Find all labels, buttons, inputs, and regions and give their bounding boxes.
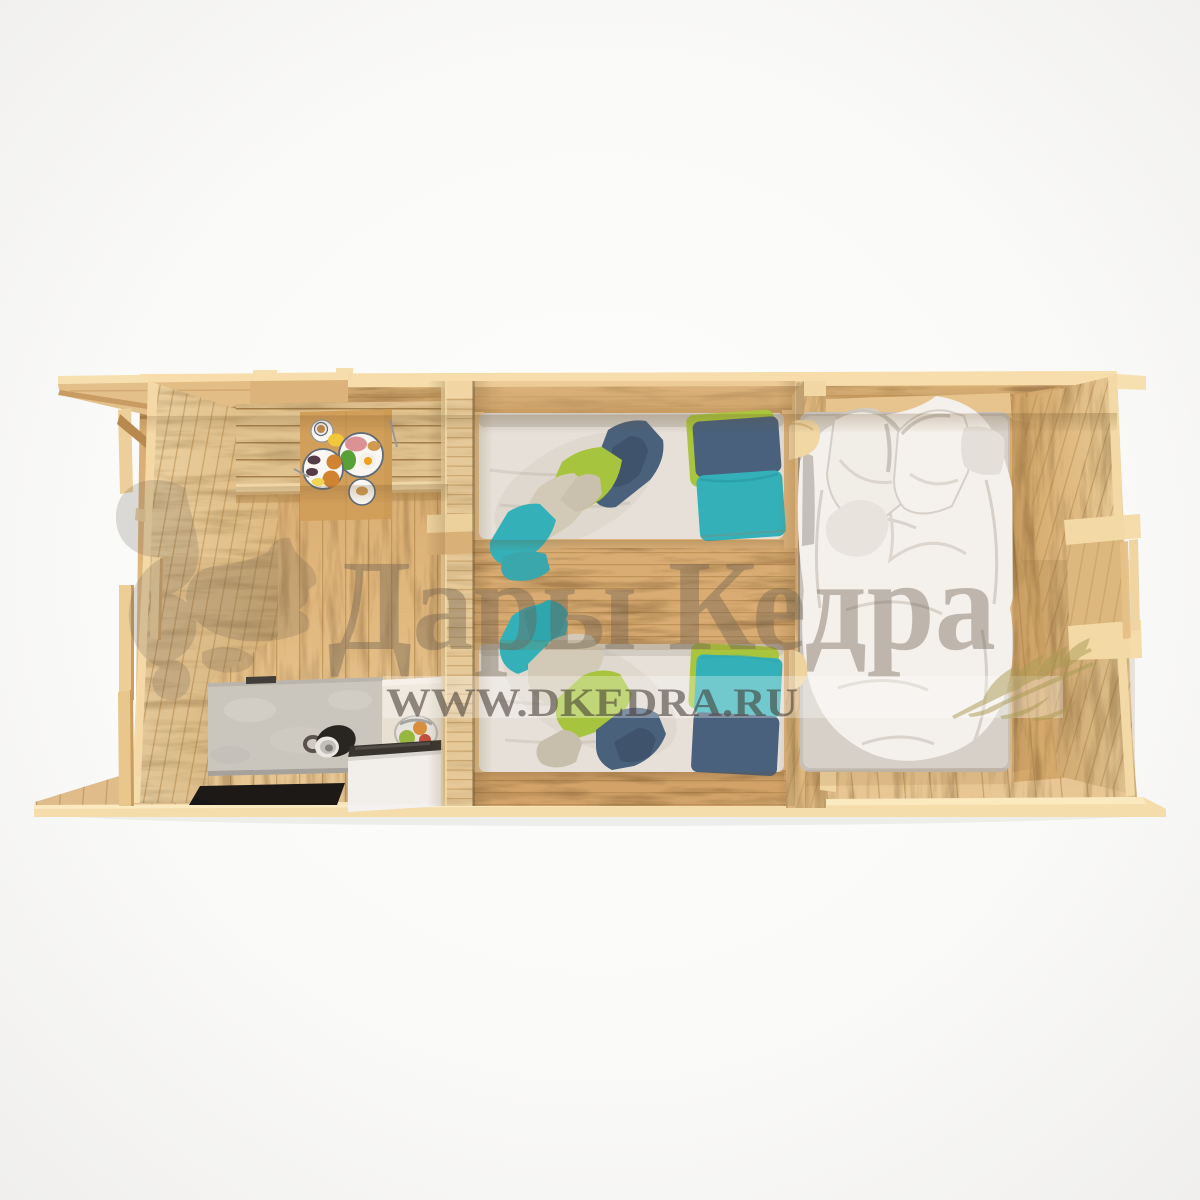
svg-text:Дары Кедра: Дары Кедра [328, 534, 996, 678]
svg-text:WWW.DKEDRA.RU: WWW.DKEDRA.RU [386, 680, 798, 725]
